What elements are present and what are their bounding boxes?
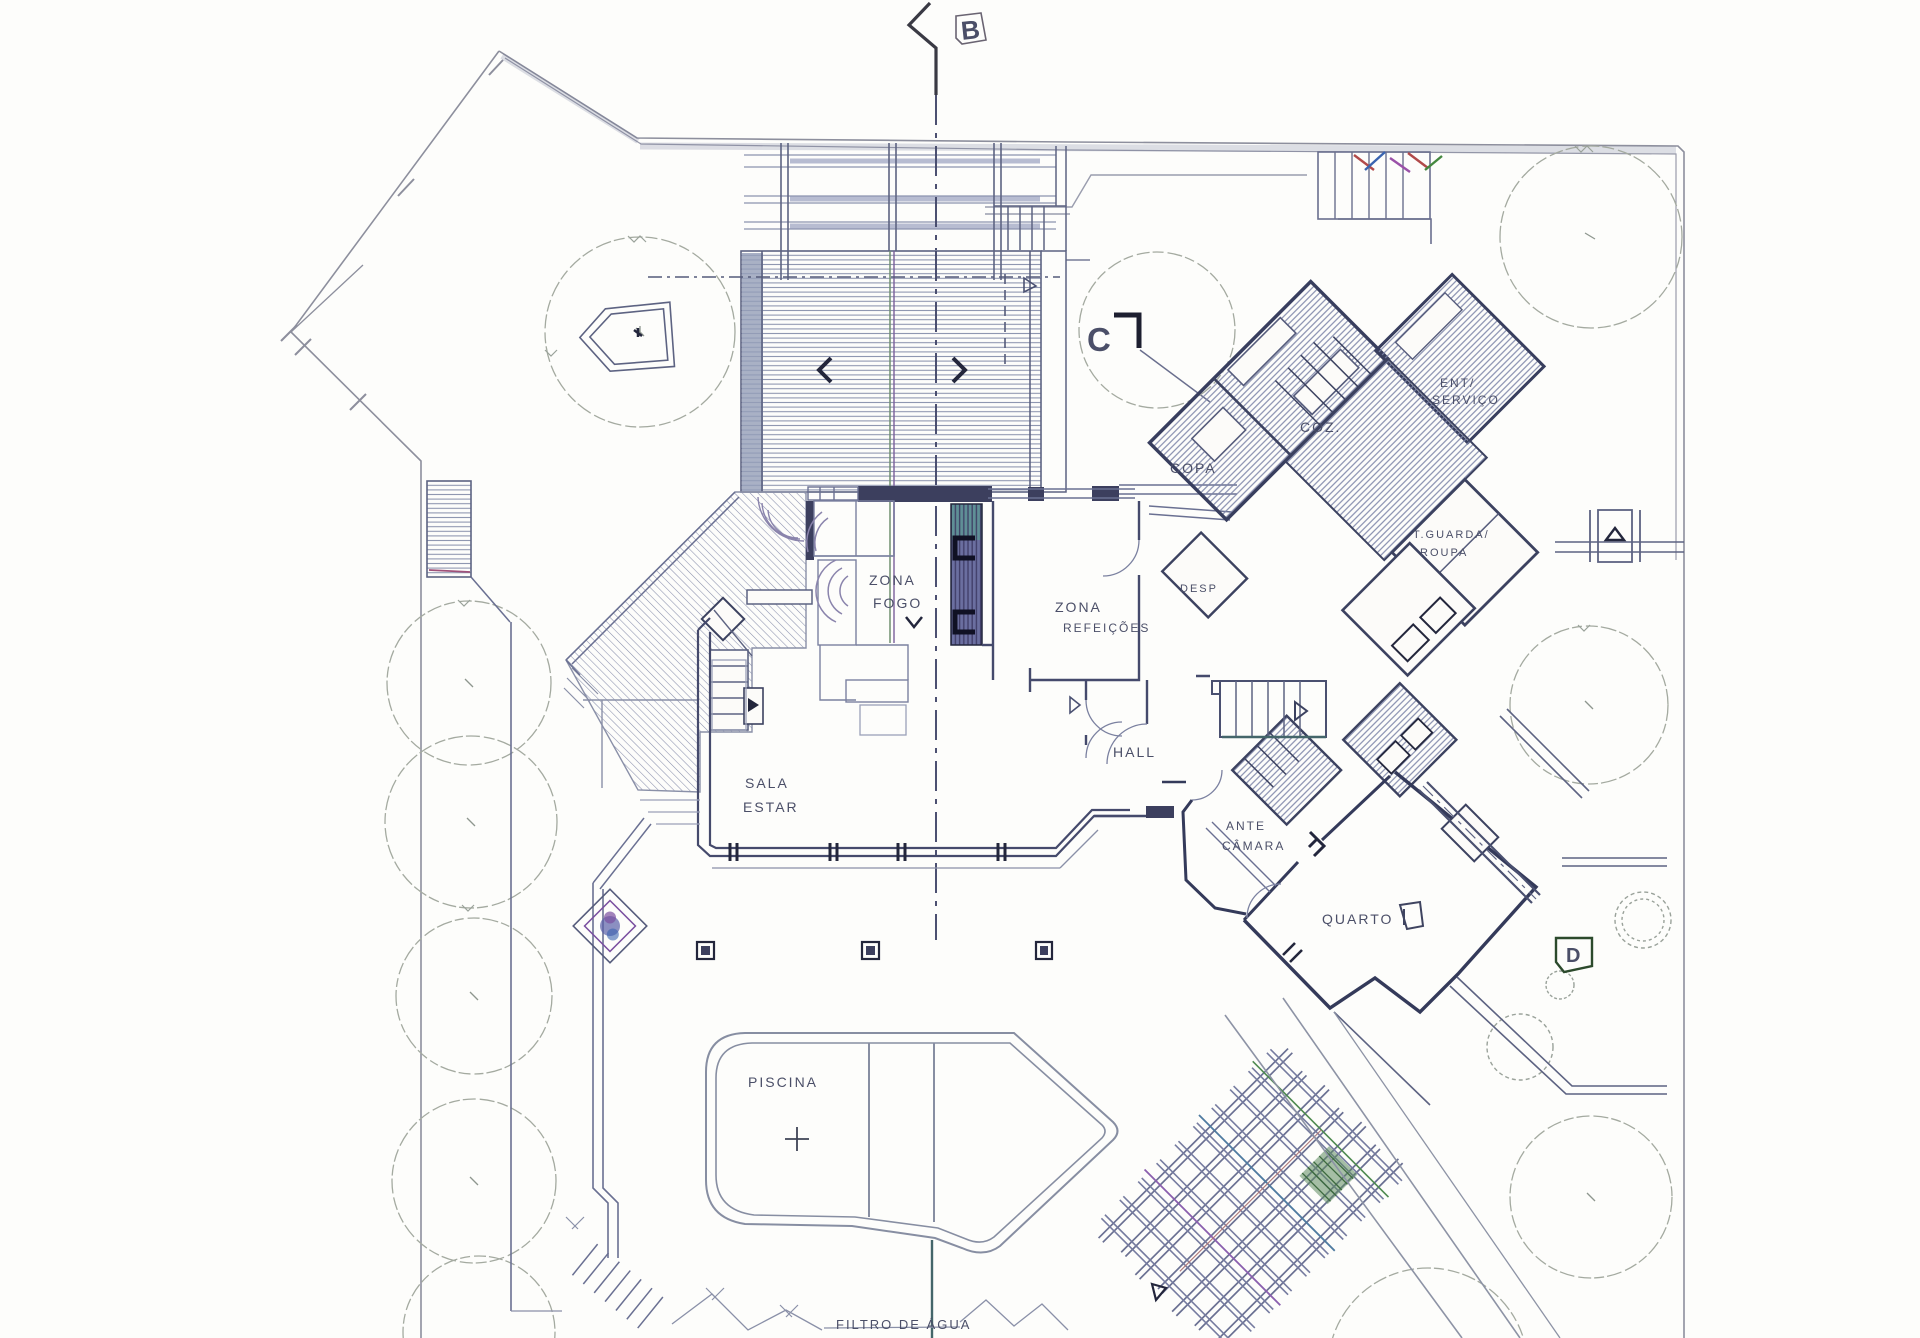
svg-text:FOGO: FOGO [873, 595, 922, 611]
svg-text:COZ.: COZ. [1300, 419, 1341, 435]
svg-text:SALA: SALA [745, 775, 789, 791]
svg-text:CÂMARA: CÂMARA [1222, 838, 1285, 853]
svg-text:ESTAR: ESTAR [743, 799, 799, 815]
svg-text:D: D [1566, 945, 1580, 967]
svg-text:DESP: DESP [1180, 583, 1218, 595]
svg-text:ZONA: ZONA [1055, 599, 1102, 615]
svg-text:T.GUARDA/: T.GUARDA/ [1413, 529, 1490, 541]
svg-text:ROUPA: ROUPA [1420, 547, 1468, 559]
svg-text:FILTRO DE ÁGUA: FILTRO DE ÁGUA [836, 1317, 971, 1332]
svg-text:ENT/: ENT/ [1440, 376, 1475, 390]
svg-text:ANTE: ANTE [1226, 819, 1266, 833]
svg-text:PISCINA: PISCINA [748, 1074, 818, 1090]
svg-text:SERVIÇO: SERVIÇO [1432, 393, 1500, 407]
svg-text:COPA: COPA [1170, 460, 1217, 476]
svg-text:C: C [1087, 321, 1111, 358]
svg-text:HALL: HALL [1113, 744, 1156, 760]
svg-text:QUARTO: QUARTO [1322, 911, 1393, 927]
svg-text:REFEIÇÕES: REFEIÇÕES [1063, 620, 1150, 635]
svg-text:ZONA: ZONA [869, 572, 916, 588]
svg-text:B: B [959, 14, 981, 46]
